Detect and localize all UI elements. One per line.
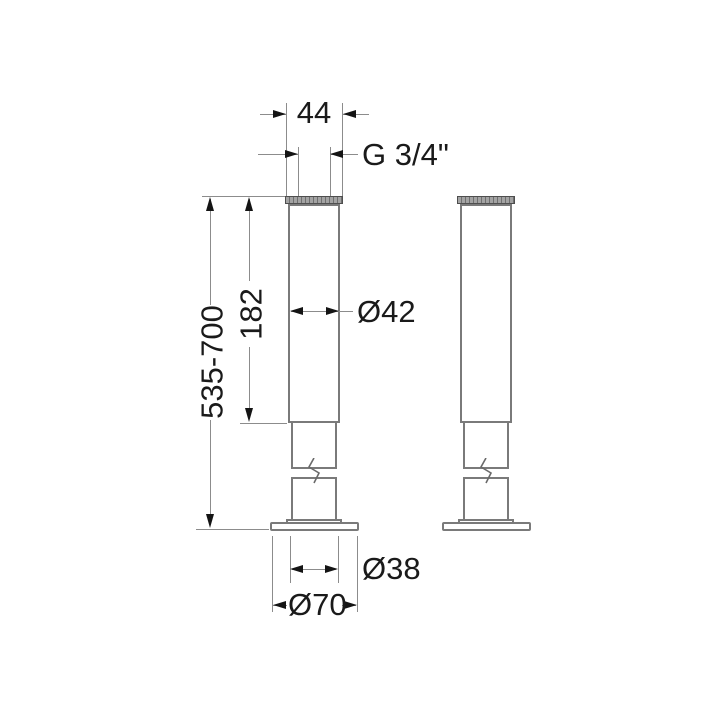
right-leg-upper-tube — [460, 204, 512, 423]
arrowhead-182-top — [245, 197, 253, 211]
extension-line-38-right — [338, 536, 339, 583]
arrowhead-70-left — [273, 601, 286, 609]
left-leg-knurled-cap — [285, 196, 343, 204]
right-leg-break-symbol — [478, 458, 494, 484]
arrowhead-182-bottom — [245, 408, 253, 422]
arrowhead-38-right — [325, 565, 338, 573]
dim-label-tube-diameter: Ø42 — [357, 296, 416, 327]
arrowhead-38-left — [290, 565, 303, 573]
extension-line-height-top — [202, 196, 285, 197]
arrowhead-42-right — [326, 307, 339, 315]
arrowhead-44-right — [343, 110, 356, 118]
extension-line-38-left — [290, 536, 291, 583]
left-leg-base-plate — [270, 522, 359, 531]
extension-line-height-bottom — [196, 529, 269, 530]
arrowhead-42-left — [290, 307, 303, 315]
arrowhead-thread-left — [285, 150, 298, 158]
dim-line-height-lower — [210, 420, 211, 514]
dim-line-height-upper — [210, 199, 211, 305]
dim-label-upper-tube-length: 182 — [236, 288, 267, 340]
right-leg-knurled-cap — [457, 196, 515, 204]
dim-label-foot-tube-diameter: Ø38 — [362, 553, 421, 584]
arrowhead-44-left — [273, 110, 286, 118]
extension-line-thread-left — [298, 147, 299, 196]
dim-label-top-width: 44 — [294, 97, 334, 128]
arrowhead-height-bottom — [206, 514, 214, 528]
dim-label-thread-size: G 3/4" — [362, 139, 449, 170]
arrowhead-height-top — [206, 197, 214, 211]
extension-line-182-bottom — [240, 423, 287, 424]
right-leg-base-plate — [442, 522, 531, 531]
dim-line-182-upper — [249, 199, 250, 281]
extension-line-70-right — [357, 536, 358, 612]
technical-drawing-canvas: 44 G 3/4" 535-700 182 Ø42 Ø38 Ø70 — [0, 0, 720, 720]
arrowhead-thread-right — [330, 150, 343, 158]
left-leg-break-symbol — [306, 458, 322, 484]
dim-label-overall-height: 535-700 — [197, 305, 228, 419]
dim-label-base-plate-diameter: Ø70 — [288, 589, 340, 620]
dim-line-182-lower — [249, 347, 250, 408]
